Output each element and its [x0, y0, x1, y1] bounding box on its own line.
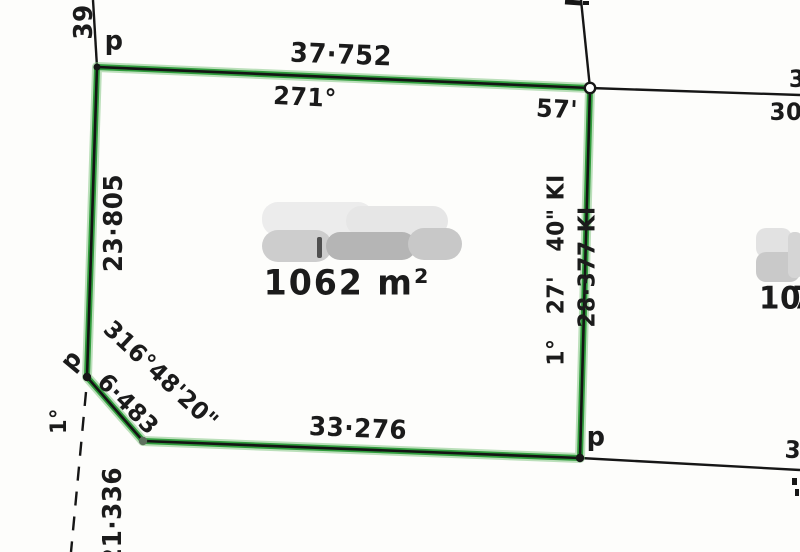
- top-boundary-distance: 37·752: [290, 40, 393, 71]
- right-boundary-distance: 28·377 KI: [577, 206, 600, 327]
- top-boundary-bearing-degrees: 271°: [273, 83, 338, 111]
- adjacent-lot-label-clipped: 7: [793, 284, 800, 315]
- corner-mark-bottom-right: [576, 454, 584, 462]
- redaction-patch: [326, 232, 416, 260]
- parcel-boundary: [87, 67, 590, 458]
- corner-mark-splay-top: [83, 373, 91, 381]
- redaction-patch: [408, 228, 462, 260]
- adjoining-line-right-lower: [580, 458, 800, 470]
- corner-mark-top-left: [94, 64, 101, 71]
- partial-glyph-top-edge: [565, 0, 589, 6]
- redaction-mark: [317, 237, 322, 258]
- peg-label-bottom-right: p: [587, 424, 606, 451]
- adjoining-line-right-upper: [590, 88, 800, 95]
- dashed-road-line: [71, 392, 86, 552]
- partial-label-bottom-right: 3: [784, 438, 800, 463]
- corner-circle-top-right: [585, 83, 595, 93]
- dashed-line-bearing: 1°: [49, 408, 71, 434]
- survey-plan: 1062 m² 37·752 271° 57' 23·805 316°48'20…: [0, 0, 800, 552]
- dashed-line-distance: 21·336: [100, 467, 126, 552]
- partial-label-right-top: 3: [789, 67, 800, 91]
- extension-line-top-right: [581, 0, 590, 88]
- partial-label-top-left: 39: [71, 4, 97, 39]
- top-boundary-bearing-minutes: 57': [535, 95, 578, 122]
- redaction-patch: [788, 232, 800, 278]
- partial-label-right-bearing: 30: [770, 100, 800, 124]
- right-boundary-bearing: 1° 27' 40" KI: [546, 174, 569, 365]
- bottom-boundary-distance: 33·276: [308, 414, 407, 444]
- partial-glyph-bottom-right-edge: [792, 478, 799, 496]
- peg-label-top-left: p: [105, 28, 124, 55]
- left-boundary-distance: 23·805: [101, 174, 127, 272]
- parcel-area-label: 1062 m²: [264, 267, 431, 302]
